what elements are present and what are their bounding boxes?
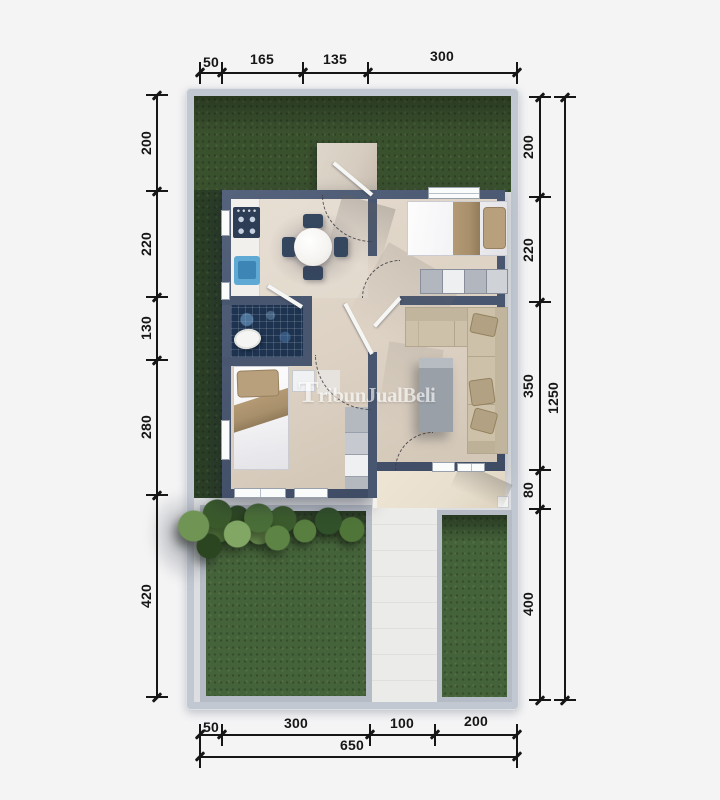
dim-label: 80 (520, 470, 536, 510)
dim-label: 220 (520, 230, 536, 270)
sink-basin (238, 261, 256, 279)
window-living (457, 463, 485, 472)
terrace (377, 471, 505, 508)
bed-1 (407, 201, 508, 256)
pillow (237, 369, 280, 397)
sofa-pillow (468, 377, 495, 406)
dim-label: 300 (276, 715, 316, 731)
dining-chair-north (303, 214, 323, 228)
dim-label: 1250 (545, 378, 561, 418)
watermark: TribunJualBeli (298, 374, 448, 410)
stove (233, 207, 260, 238)
dim-label: 135 (315, 51, 355, 67)
dining-chair-south (303, 266, 323, 280)
wall-bathroom-bedroom2 (222, 357, 312, 366)
entry-walkway (317, 143, 377, 192)
pillow (483, 207, 506, 249)
wall-bathroom-right (303, 296, 312, 366)
terrace-door-panel (432, 462, 455, 472)
corner-tree (176, 490, 294, 570)
dim-label: 350 (520, 366, 536, 406)
dim-label: 400 (520, 584, 536, 624)
backyard-right-shadow (442, 515, 507, 585)
terrace-post (497, 496, 509, 508)
dim-label: 280 (138, 407, 154, 447)
dim-label: 300 (422, 48, 462, 64)
dim-label: 100 (382, 715, 422, 731)
window-bedroom2-a (234, 488, 286, 498)
dim-label: 200 (520, 127, 536, 167)
dining-chair-east (334, 237, 348, 257)
wall-bedroom1-living (400, 296, 505, 305)
floorplan-canvas: 50 165 135 300 200 220 130 280 420 (0, 0, 720, 800)
blanket (453, 201, 480, 256)
bed-2 (233, 366, 289, 470)
dim-label: 650 (332, 737, 372, 753)
kitchen-sink (234, 256, 260, 285)
garden-path (372, 498, 437, 702)
dim-label: 165 (242, 51, 282, 67)
dresser (420, 269, 508, 294)
wardrobe (345, 407, 368, 489)
dim-label: 420 (138, 576, 154, 616)
dim-label: 200 (138, 123, 154, 163)
window-kitchen-b (221, 282, 230, 300)
dim-label: 50 (191, 54, 231, 70)
dim-label: 220 (138, 224, 154, 264)
window-kitchen-a (221, 210, 230, 236)
dining-table (294, 228, 332, 266)
dim-label: 200 (456, 713, 496, 729)
window-bedroom2-side (221, 420, 230, 460)
side-yard-grass (194, 190, 222, 498)
dim-label: 130 (138, 308, 154, 348)
dim-label: 50 (191, 719, 231, 735)
window-bedroom1 (428, 187, 480, 199)
window-bedroom2-b (294, 488, 328, 498)
